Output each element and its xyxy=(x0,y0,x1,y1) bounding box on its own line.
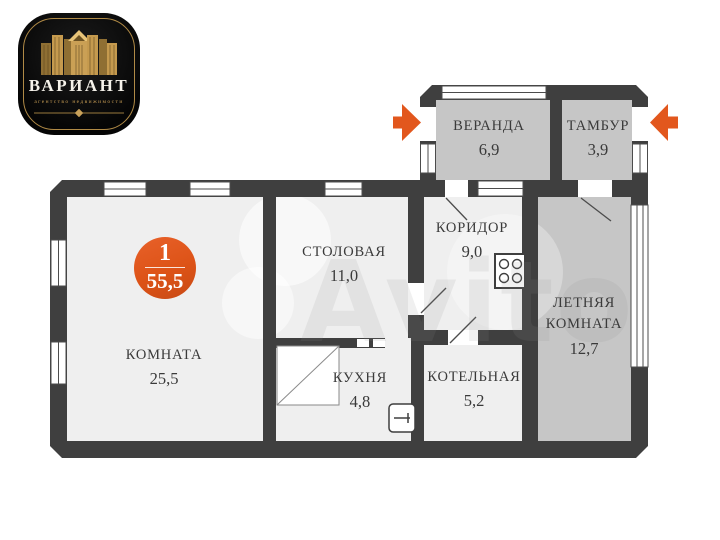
window xyxy=(421,144,436,173)
badge-divider xyxy=(145,267,185,268)
floorplan-image: Avito ВЕРАНДА 6,9 ТАМБУР 3,9 КОРИДОР 9,0… xyxy=(0,0,720,540)
room-name: КОМНАТА xyxy=(546,314,623,335)
room-label-koridor: КОРИДОР 9,0 xyxy=(436,217,508,263)
entry-arrow-icon xyxy=(650,104,678,141)
room-area: 11,0 xyxy=(302,264,386,287)
entry-door-right xyxy=(632,107,648,141)
window xyxy=(190,182,230,196)
window xyxy=(51,342,66,384)
room-label-stolovaya: СТОЛОВАЯ 11,0 xyxy=(302,241,386,287)
total-area-badge: 1 55,5 xyxy=(134,237,196,299)
room-name: КОТЕЛЬНАЯ xyxy=(427,366,520,389)
window xyxy=(631,205,648,367)
room-name: КОРИДОР xyxy=(436,217,508,240)
window xyxy=(51,240,66,286)
entry-arrow-icon xyxy=(393,104,421,141)
room-area: 3,9 xyxy=(567,138,629,161)
room-label-komnata: КОМНАТА 25,5 xyxy=(126,344,203,390)
room-area: 6,9 xyxy=(453,138,525,161)
room-name: КУХНЯ xyxy=(333,367,387,390)
agency-logo: ВАРИАНТ агентство недвижимости xyxy=(18,13,140,135)
buildings-logo-icon xyxy=(35,25,123,75)
window xyxy=(104,182,146,196)
room-area: 12,7 xyxy=(546,338,623,359)
room-label-letnyaya-komnata: ЛЕТНЯЯ КОМНАТА 12,7 xyxy=(546,293,623,359)
room-label-kotelnaya: КОТЕЛЬНАЯ 5,2 xyxy=(427,366,520,412)
room-name: ЛЕТНЯЯ xyxy=(546,293,623,314)
room-area: 5,2 xyxy=(427,389,520,412)
logo-divider xyxy=(34,109,124,117)
logo-brand-text: ВАРИАНТ xyxy=(18,76,140,96)
room-label-veranda: ВЕРАНДА 6,9 xyxy=(453,115,525,161)
room-name: СТОЛОВАЯ xyxy=(302,241,386,264)
entry-door-left xyxy=(420,107,436,141)
sink-icon xyxy=(389,404,415,432)
cabinet-icon xyxy=(277,346,339,405)
room-area: 4,8 xyxy=(333,390,387,413)
room-label-kuhnya: КУХНЯ 4,8 xyxy=(333,367,387,413)
room-area: 9,0 xyxy=(436,240,508,263)
flat-number: 1 xyxy=(134,240,196,266)
room-name: КОМНАТА xyxy=(126,344,203,367)
room-name: ВЕРАНДА xyxy=(453,115,525,138)
room-area: 25,5 xyxy=(126,367,203,390)
logo-tagline-text: агентство недвижимости xyxy=(18,99,140,105)
window xyxy=(478,181,523,196)
window xyxy=(325,182,362,196)
room-name: ТАМБУР xyxy=(567,115,629,138)
window xyxy=(442,86,546,99)
total-area-value: 55,5 xyxy=(134,269,196,293)
room-label-tambur: ТАМБУР 3,9 xyxy=(567,115,629,161)
window xyxy=(633,144,648,173)
